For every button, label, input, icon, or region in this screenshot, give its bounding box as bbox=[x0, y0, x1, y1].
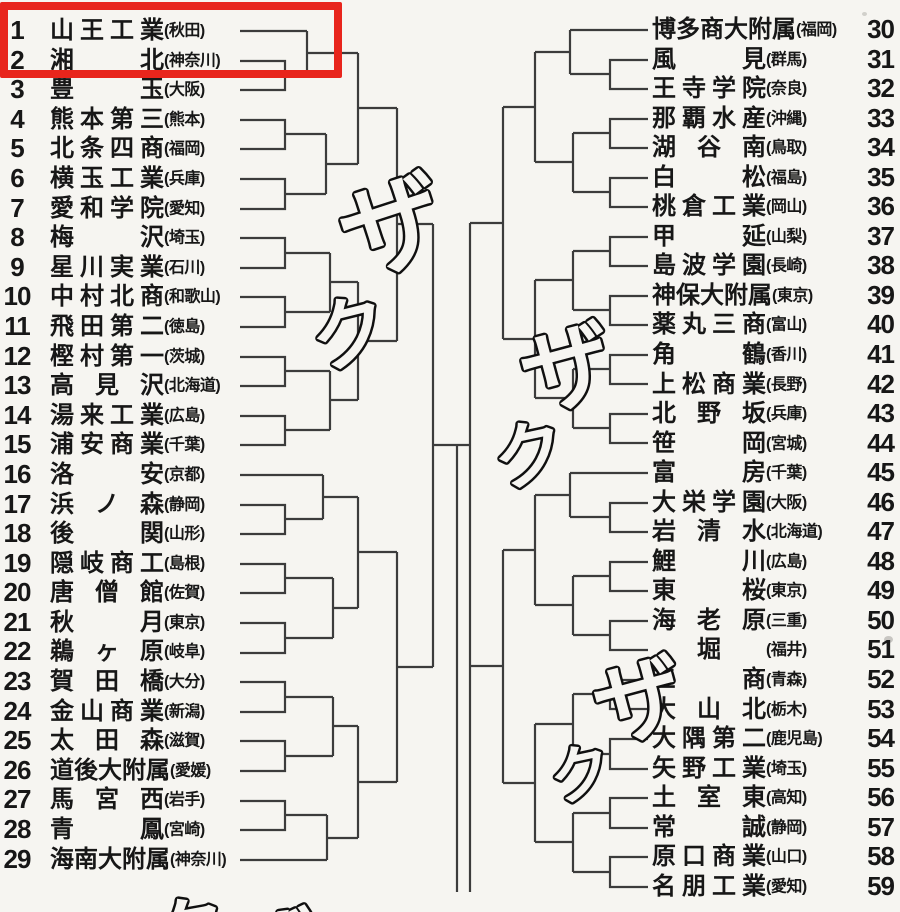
tournament-bracket-page: 1 山王工業 秋田 2 湘北 神奈川 3 豊玉 大阪 4 熊本第三 熊本 bbox=[0, 0, 900, 912]
scribble-za-icon: ザ bbox=[221, 896, 326, 912]
hand-drawn-scribbles: ザ ク ザ ク ザ ク ク ザ bbox=[0, 0, 900, 912]
scribble-za-icon: ザ bbox=[511, 309, 626, 431]
scribble-ku-icon: ク bbox=[302, 282, 399, 386]
scribble-za-icon: ザ bbox=[327, 157, 462, 299]
